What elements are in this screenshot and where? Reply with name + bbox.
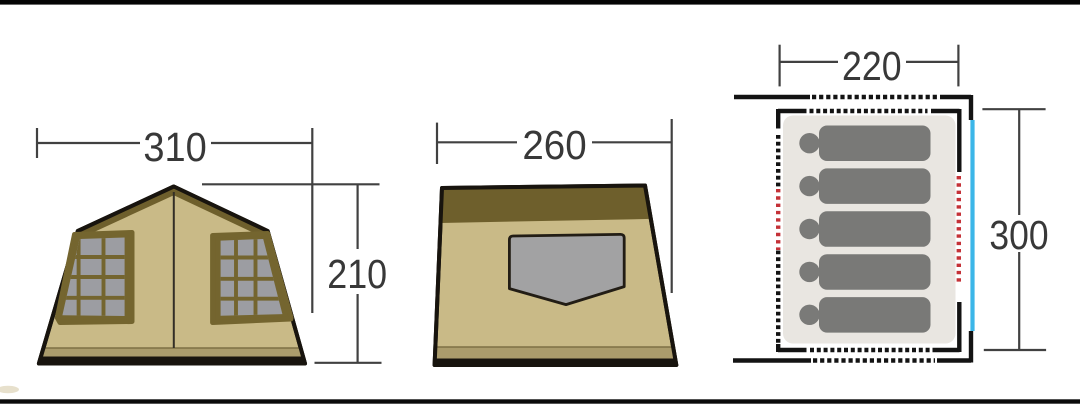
svg-text:220: 220 xyxy=(842,44,902,90)
svg-text:260: 260 xyxy=(522,123,586,168)
svg-text:310: 310 xyxy=(143,125,206,171)
svg-text:210: 210 xyxy=(327,252,387,298)
svg-text:300: 300 xyxy=(989,213,1048,259)
